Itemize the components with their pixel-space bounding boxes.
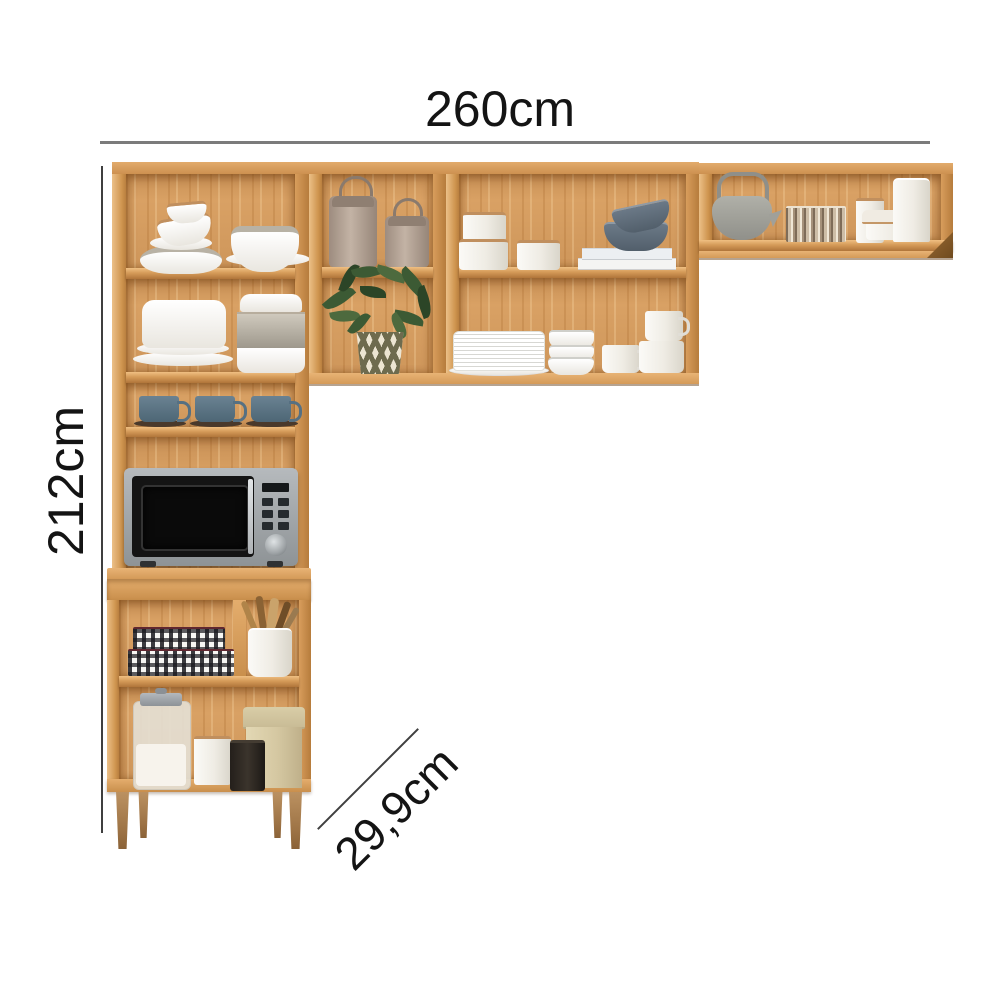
cabinet-top-frame bbox=[446, 162, 699, 174]
microwave-button bbox=[262, 522, 273, 530]
glass-container-base bbox=[237, 348, 305, 373]
cabinet-leg bbox=[271, 792, 284, 838]
width-dimension-label: 260cm bbox=[425, 80, 575, 138]
microwave-button bbox=[262, 510, 273, 518]
cabinet-left-side bbox=[699, 174, 712, 240]
microwave-knob bbox=[265, 534, 287, 556]
blue-mug bbox=[195, 396, 235, 422]
canister-single bbox=[517, 240, 560, 270]
width-dimension-line bbox=[100, 141, 930, 144]
cabinet-right-side bbox=[686, 174, 699, 373]
cabinet-bottom-edge bbox=[309, 384, 446, 386]
bowl-stack-bottom bbox=[548, 357, 594, 375]
blue-mug bbox=[251, 396, 291, 422]
flour-fill bbox=[136, 744, 186, 786]
base-left-side bbox=[107, 600, 119, 779]
microwave-button bbox=[278, 498, 289, 506]
cabinet-leg bbox=[287, 792, 304, 849]
blue-mug bbox=[139, 396, 179, 422]
glass-container-band bbox=[237, 312, 305, 350]
cabinet-bottom-edge bbox=[446, 384, 699, 386]
microwave-door-handle bbox=[248, 479, 253, 554]
crock-body bbox=[248, 628, 292, 677]
product-dimension-diagram: 260cm 212cm 29,9cm bbox=[0, 0, 1000, 1000]
gingham-box-top bbox=[133, 627, 225, 651]
jar-lid bbox=[140, 693, 182, 706]
height-dimension-label: 212cm bbox=[37, 401, 95, 561]
plate-stack bbox=[453, 331, 545, 371]
cabinet-leg bbox=[114, 792, 131, 849]
cabinet-underside bbox=[699, 251, 953, 258]
low-bowl bbox=[140, 246, 222, 274]
microwave-button bbox=[278, 510, 289, 518]
metallic-tumblers bbox=[786, 206, 846, 242]
microwave-foot bbox=[140, 561, 156, 567]
white-mug bbox=[639, 341, 684, 373]
black-canister bbox=[230, 740, 265, 791]
cabinet-right-side bbox=[433, 174, 446, 373]
microwave-window bbox=[141, 485, 249, 551]
tall-cylinder-jar bbox=[893, 178, 930, 242]
cabinet-bottom-face bbox=[309, 373, 446, 384]
base-countertop bbox=[107, 568, 311, 579]
microwave-button bbox=[278, 522, 289, 530]
microwave-button bbox=[262, 498, 273, 506]
plant-pot bbox=[352, 332, 408, 374]
white-mug bbox=[602, 345, 640, 373]
depth-dimension-label: 29,9cm bbox=[317, 729, 475, 887]
canister-stacked-top bbox=[463, 212, 506, 242]
cabinet-left-side bbox=[309, 174, 322, 373]
glass-container-lid bbox=[240, 294, 302, 312]
white-canister bbox=[194, 736, 231, 785]
canister-lid bbox=[332, 196, 374, 207]
cream-tin-lid bbox=[243, 707, 305, 729]
cabinet-top-frame bbox=[309, 162, 446, 174]
base-shelf-board bbox=[119, 676, 299, 687]
canister-lid bbox=[388, 216, 426, 226]
tower-shelf-board-2 bbox=[126, 372, 295, 383]
height-dimension-line bbox=[101, 166, 103, 833]
cabinet-leg bbox=[137, 792, 150, 838]
tower-shelf-board-3 bbox=[126, 427, 295, 437]
base-drawer-front bbox=[107, 579, 311, 600]
canister-stacked-bottom bbox=[459, 239, 508, 270]
cabinet-right-side bbox=[941, 174, 953, 240]
dish-stack-dome bbox=[142, 300, 226, 348]
tower-top-frame bbox=[112, 162, 309, 174]
gingham-box-bottom bbox=[128, 649, 234, 676]
microwave-display bbox=[262, 483, 289, 492]
microwave-foot bbox=[267, 561, 283, 567]
cabinet-bottom-edge bbox=[699, 258, 953, 260]
jar-lid-knob bbox=[155, 688, 167, 694]
